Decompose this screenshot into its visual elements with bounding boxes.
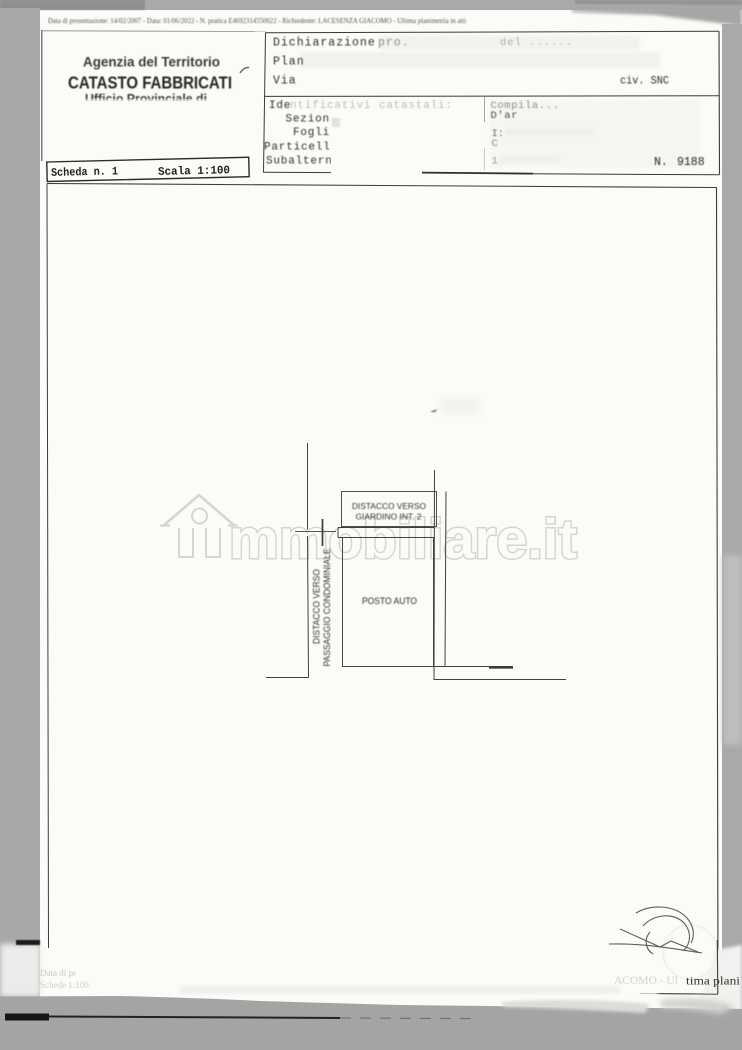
svg-text:GIARDINO INT. 2: GIARDINO INT. 2 xyxy=(356,512,422,522)
svg-text:1: 1 xyxy=(492,156,498,168)
svg-text:Dichiarazione: Dichiarazione xyxy=(273,37,376,50)
svg-text:PASSAGGIO CONDOMINIALE: PASSAGGIO CONDOMINIALE xyxy=(322,549,332,667)
svg-text:Data di pr: Data di pr xyxy=(40,968,76,978)
svg-text:Data di presentazione: 14/02/2: Data di presentazione: 14/02/2007 - Data… xyxy=(48,17,466,25)
svg-text:POSTO AUTO: POSTO AUTO xyxy=(362,596,417,607)
svg-text:ntificativi catastali:: ntificativi catastali: xyxy=(290,100,453,112)
svg-text:Via: Via xyxy=(273,75,297,88)
svg-text:Particell: Particell xyxy=(264,142,331,154)
svg-text:tima plani: tima plani xyxy=(686,974,741,988)
svg-text:Plan: Plan xyxy=(273,56,305,69)
svg-text:Scala 1:100: Scala 1:100 xyxy=(158,164,230,179)
svg-text:pro.: pro. xyxy=(378,37,410,50)
svg-text:C: C xyxy=(492,138,498,150)
svg-text:civ. SNC: civ. SNC xyxy=(620,76,669,88)
svg-text:del ......: del ...... xyxy=(500,37,573,49)
svg-text:CATASTO FABBRICATI: CATASTO FABBRICATI xyxy=(68,73,232,93)
svg-text:Ide: Ide xyxy=(269,100,291,112)
svg-text:Scheda n. 1: Scheda n. 1 xyxy=(51,165,118,180)
svg-text:Agenzia del Territorio: Agenzia del Territorio xyxy=(83,55,220,70)
svg-text:ACOMO - Ul: ACOMO - Ul xyxy=(614,975,678,987)
svg-text:Sezion: Sezion xyxy=(286,114,330,126)
svg-text:Subaltern: Subaltern xyxy=(266,156,333,168)
svg-text:D'ar: D'ar xyxy=(491,110,519,122)
svg-text:DISTACCO VERSO: DISTACCO VERSO xyxy=(312,569,322,644)
svg-text:Schede 1:100: Schede 1:100 xyxy=(40,980,89,990)
svg-text:9188: 9188 xyxy=(677,156,705,169)
svg-text:Fogli: Fogli xyxy=(293,127,330,139)
svg-text:DISTACCO VERSO: DISTACCO VERSO xyxy=(352,501,427,511)
svg-text:N.: N. xyxy=(654,156,668,169)
